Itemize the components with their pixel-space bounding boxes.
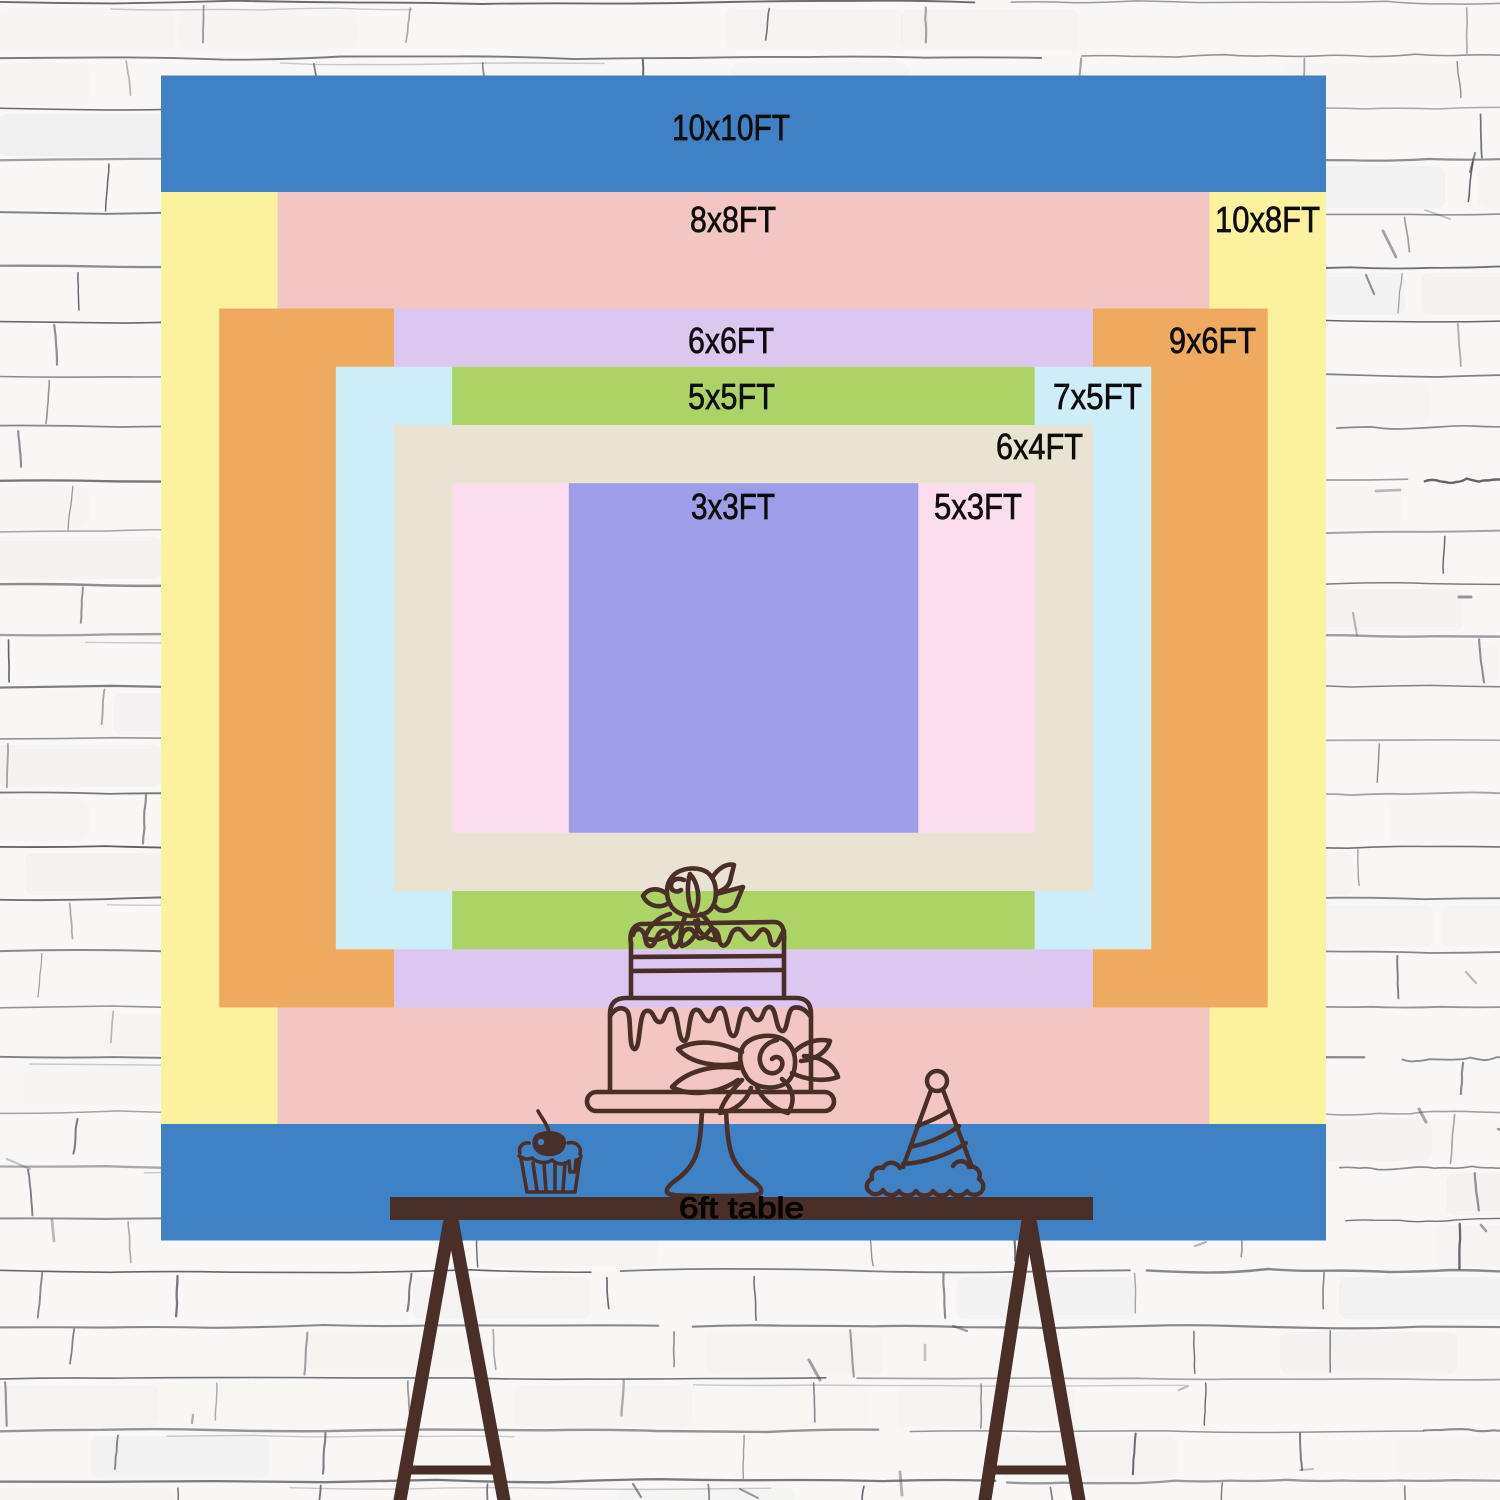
svg-text:6ft table: 6ft table [679,1192,804,1225]
svg-text:9x6FT: 9x6FT [1169,320,1256,361]
svg-text:7x5FT: 7x5FT [1053,376,1142,417]
svg-text:6x6FT: 6x6FT [688,320,774,361]
svg-text:5x5FT: 5x5FT [688,376,775,417]
svg-text:3x3FT: 3x3FT [691,486,775,527]
svg-text:8x8FT: 8x8FT [690,199,776,240]
svg-text:10x8FT: 10x8FT [1215,199,1320,240]
svg-text:5x3FT: 5x3FT [934,486,1022,527]
svg-text:10x10FT: 10x10FT [672,107,790,148]
svg-text:6x4FT: 6x4FT [996,426,1083,467]
